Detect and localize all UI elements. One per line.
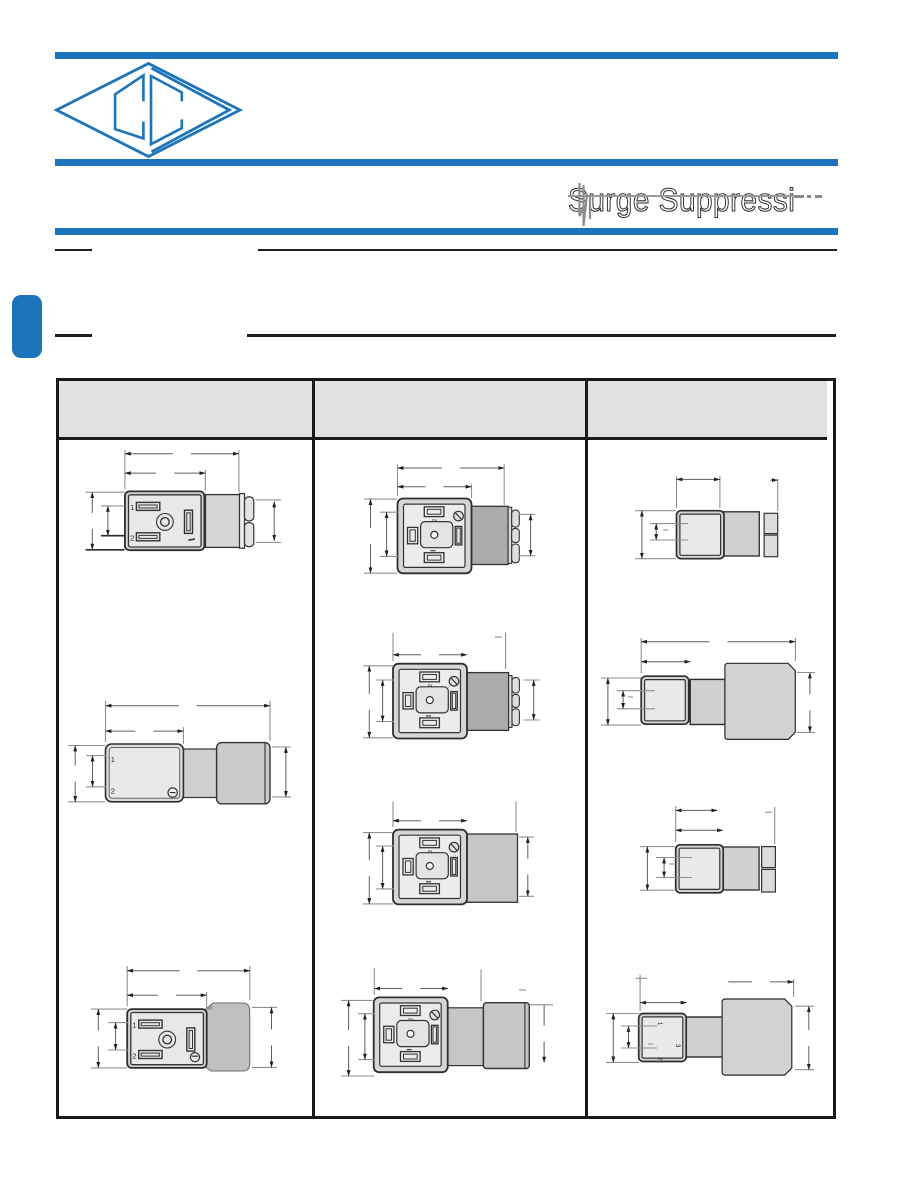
svg-text:1: 1 bbox=[111, 755, 115, 764]
svg-text:2: 2 bbox=[111, 787, 115, 796]
